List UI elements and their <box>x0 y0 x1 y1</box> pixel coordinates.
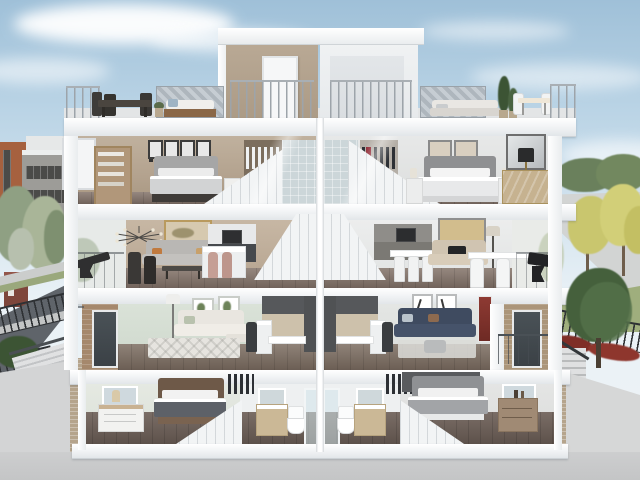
toilet-bowl <box>337 418 355 434</box>
outdoor-dining-table <box>98 100 152 107</box>
counter-top <box>268 336 306 344</box>
toilet-bowl <box>287 418 305 434</box>
blush-stool <box>222 252 232 278</box>
kitchen-upper-dark <box>262 296 304 314</box>
bulkhead-right-cap <box>320 28 424 45</box>
microwave <box>222 230 242 244</box>
table-leg <box>144 107 147 117</box>
dark-bar-stool <box>382 322 393 352</box>
bed-base <box>422 196 498 202</box>
sage-pillow <box>184 316 195 324</box>
townhouse-windows <box>26 166 66 179</box>
daybed-pillow <box>168 99 178 107</box>
book-row <box>98 162 124 166</box>
kitchen-upper-dark <box>336 296 378 314</box>
table-leg <box>198 271 200 279</box>
wood-dresser <box>498 398 538 432</box>
bed-pillows <box>430 168 490 177</box>
light-pillow <box>402 314 413 322</box>
building-right-wall <box>548 136 562 370</box>
cloud <box>0 58 110 84</box>
tree-trunk <box>596 338 601 368</box>
ensuite-left <box>282 140 316 204</box>
wall-sconce <box>149 159 153 162</box>
bulkhead-left-cap <box>218 28 320 45</box>
drawer-line <box>502 417 532 418</box>
bed-pillows <box>418 388 478 397</box>
bed-duvet <box>150 176 222 194</box>
planter-pot <box>155 108 163 117</box>
terrace-railing-right <box>550 84 576 120</box>
floor-lamp-shade <box>486 226 500 236</box>
white-stool <box>394 256 405 282</box>
bed-pillows <box>158 168 214 176</box>
table-leg <box>166 271 168 279</box>
plant-pot <box>499 110 508 118</box>
table-leg <box>544 103 546 115</box>
drawer-line <box>502 408 532 409</box>
open-clothes-rack <box>228 374 254 394</box>
table-leg <box>102 107 105 117</box>
daybed-base <box>164 109 216 117</box>
black-lamp-shade <box>518 148 534 162</box>
white-chair <box>470 258 484 288</box>
table-lamp <box>112 390 120 402</box>
art-brushwork <box>172 228 194 238</box>
charcoal-duvet <box>154 399 226 417</box>
kitchen-tall-cabinet <box>324 296 336 352</box>
book-row <box>98 152 124 156</box>
outdoor-sofa-seat <box>430 108 500 116</box>
nightstand <box>406 178 423 204</box>
table-lamp <box>410 168 417 178</box>
dark-balcony-railing <box>498 334 548 364</box>
large-green-tree <box>580 282 632 342</box>
dark-dining-chair <box>128 252 141 284</box>
bulkhead-railing-right <box>330 80 412 120</box>
white-stool <box>408 256 419 282</box>
street-tree <box>8 228 34 270</box>
blush-stool <box>208 252 218 278</box>
bulkhead-railing-left <box>230 80 314 120</box>
dark-bar-stool <box>246 322 257 352</box>
table-leg <box>522 103 524 115</box>
bed-duvet-white <box>418 177 502 196</box>
credenza <box>502 170 550 204</box>
decor-bottle <box>521 391 524 398</box>
bathroom-vanity <box>256 404 288 436</box>
decor-bottle <box>514 390 518 398</box>
arc-lamp-shade <box>166 294 180 304</box>
lounge-chair-legs <box>80 264 106 278</box>
glazed-door-left <box>92 310 118 368</box>
bed-pillows <box>162 390 218 399</box>
white-chair <box>496 258 510 288</box>
drawer-line <box>104 421 136 422</box>
architectural-section-render <box>0 0 640 480</box>
party-wall <box>316 118 324 452</box>
microwave <box>396 228 416 242</box>
grey-duvet <box>408 397 488 414</box>
navy-sofa-seat <box>394 324 476 337</box>
egress-window <box>102 386 138 406</box>
building-left-wall <box>64 136 78 370</box>
dark-dining-chair <box>144 256 156 284</box>
tree-trunk <box>622 244 625 276</box>
patterned-rug <box>148 338 240 358</box>
bathroom-vanity <box>354 404 386 436</box>
basement-left-cut-wall <box>78 370 86 450</box>
drawer-line <box>104 414 136 415</box>
basement-right-cut-wall <box>554 370 562 450</box>
book-row <box>98 182 124 186</box>
tan-pillow <box>428 314 439 322</box>
cloud <box>420 22 570 40</box>
counter-top <box>336 336 374 344</box>
grey-ottoman <box>424 340 446 353</box>
white-nightstand <box>98 404 144 432</box>
book-row <box>98 172 124 176</box>
